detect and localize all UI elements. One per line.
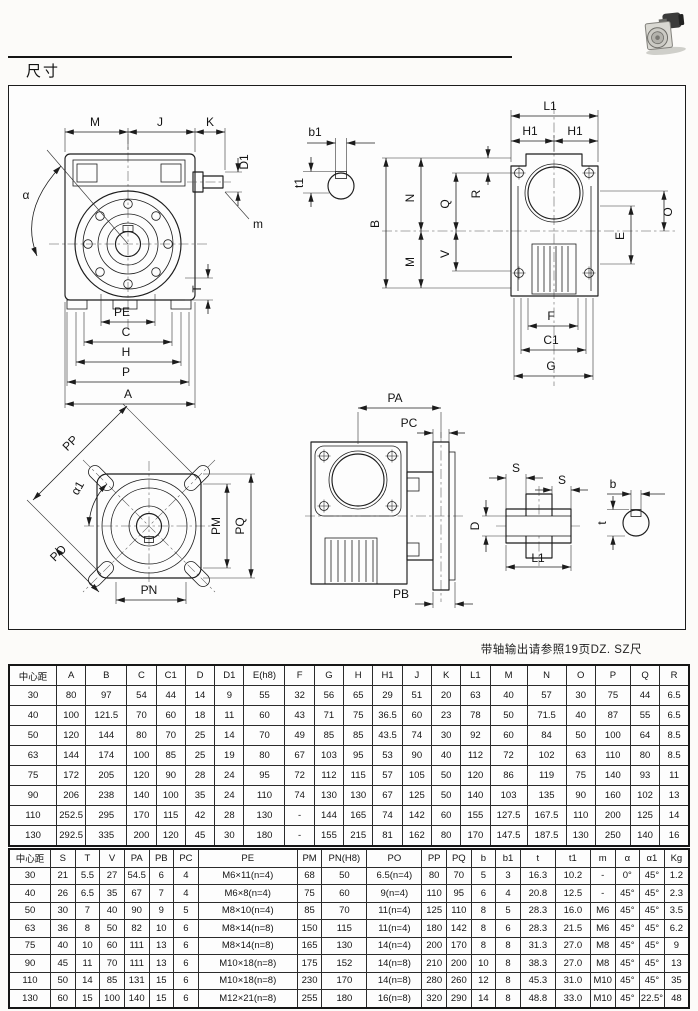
column-header: L1 — [461, 665, 490, 686]
table-cell: 100 — [127, 746, 156, 766]
table-cell: 14 — [471, 990, 496, 1008]
column-header: M — [490, 665, 527, 686]
table-cell: 10.2 — [555, 867, 590, 885]
table-cell: 74 — [373, 806, 402, 826]
table-cell: 13 — [149, 937, 174, 955]
table-cell: 110 — [244, 786, 285, 806]
table-cell: 9 — [664, 937, 689, 955]
table-cell: 200 — [422, 937, 447, 955]
table-cell: 16.0 — [555, 902, 590, 920]
table-cell: 67 — [124, 885, 149, 903]
table-cell: 3 — [496, 867, 521, 885]
table-cell: 30 — [431, 726, 460, 746]
table-cell: 155 — [461, 806, 490, 826]
table-cell: 16(n=8) — [367, 990, 422, 1008]
table-cell: 175 — [297, 955, 322, 973]
table-cell: - — [590, 885, 615, 903]
table-cell: 95 — [447, 885, 472, 903]
table-cell: 90 — [566, 786, 595, 806]
column-header: O — [566, 665, 595, 686]
table-cell: 142 — [402, 806, 431, 826]
table-cell: 8.5 — [660, 726, 689, 746]
table-cell: M10 — [590, 990, 615, 1008]
table-cell: 24 — [215, 766, 244, 786]
column-header: J — [402, 665, 431, 686]
table-cell: 15 — [149, 990, 174, 1008]
table-cell: 86 — [490, 766, 527, 786]
column-header: G — [314, 665, 343, 686]
worm-gearbox-photo — [640, 7, 688, 57]
column-header: F — [285, 665, 314, 686]
table-cell: 55 — [630, 706, 659, 726]
input-key-detail-drawing: b1 t1 — [292, 125, 375, 207]
table-cell: 10 — [471, 955, 496, 973]
table-cell: 63 — [9, 746, 57, 766]
table-row: 130292.53352001204530180-155215811628017… — [9, 826, 689, 847]
table-cell: 30 — [9, 686, 57, 706]
table-cell: 215 — [344, 826, 373, 847]
table-cell: 320 — [422, 990, 447, 1008]
table-cell: 335 — [86, 826, 127, 847]
table-cell: 65 — [344, 686, 373, 706]
column-header: Kg — [664, 849, 689, 867]
shaft-output-note: 带轴输出请参照19页DZ. SZ尺 — [481, 641, 642, 657]
column-header: A — [57, 665, 86, 686]
table-cell: 24 — [215, 786, 244, 806]
column-header: H1 — [373, 665, 402, 686]
table-cell: 45° — [615, 885, 640, 903]
table-cell: 74 — [285, 786, 314, 806]
table-cell: - — [285, 806, 314, 826]
table-cell: 80 — [422, 867, 447, 885]
table-cell: M6 — [590, 902, 615, 920]
table-cell: 29 — [373, 686, 402, 706]
table-row: 633685082106M8×14(n=8)15011511(n=4)18014… — [9, 920, 689, 938]
table-cell: 200 — [447, 955, 472, 973]
dim-label-J: J — [157, 115, 163, 129]
table-cell: 36.5 — [373, 706, 402, 726]
table-cell: 144 — [314, 806, 343, 826]
table-cell: 6.5 — [660, 706, 689, 726]
table-cell: 75 — [344, 706, 373, 726]
table-cell: 28.3 — [520, 920, 555, 938]
table-cell: 87 — [595, 706, 630, 726]
table-cell: 121.5 — [86, 706, 127, 726]
column-header: Q — [630, 665, 659, 686]
table-cell: 50 — [100, 920, 125, 938]
table-cell: 14 — [215, 726, 244, 746]
table-cell: 13 — [664, 955, 689, 973]
table-cell: 45° — [640, 972, 665, 990]
table-cell: 45° — [640, 920, 665, 938]
table-cell: 30 — [51, 902, 76, 920]
header-rule — [8, 56, 512, 58]
table-cell: 36 — [51, 920, 76, 938]
table-cell: 100 — [100, 990, 125, 1008]
table-cell: 5 — [174, 902, 199, 920]
table-cell: 180 — [322, 990, 367, 1008]
table-cell: 130 — [344, 786, 373, 806]
table-row: 9020623814010035241107413013067125501401… — [9, 786, 689, 806]
table-cell: 28.3 — [520, 902, 555, 920]
table-cell: 71 — [314, 706, 343, 726]
dim-label-K: K — [206, 115, 214, 129]
table-cell: 45° — [640, 902, 665, 920]
column-header: PB — [149, 849, 174, 867]
table-cell: 82 — [124, 920, 149, 938]
table-cell: 100 — [595, 726, 630, 746]
dim-label-B: B — [368, 220, 382, 228]
column-header: t — [520, 849, 555, 867]
table-cell: 6 — [174, 920, 199, 938]
dim-label-Q: Q — [438, 199, 452, 208]
table-cell: 50 — [566, 726, 595, 746]
table-cell: 78 — [461, 706, 490, 726]
table-cell: 95 — [344, 746, 373, 766]
dim-label-V: V — [438, 250, 452, 258]
dim-label-PB: PB — [393, 587, 409, 601]
table-cell: 147.5 — [490, 826, 527, 847]
table-cell: 40 — [431, 746, 460, 766]
table-cell: 165 — [344, 806, 373, 826]
table-cell: 43.5 — [373, 726, 402, 746]
table-cell: 97 — [86, 686, 127, 706]
table-cell: 210 — [422, 955, 447, 973]
table-cell: 45° — [640, 955, 665, 973]
table-cell: 8 — [471, 937, 496, 955]
table-cell: 180 — [422, 920, 447, 938]
dim-label-PM: PM — [209, 517, 223, 535]
table-cell: 44 — [156, 686, 185, 706]
table-cell: 155 — [314, 826, 343, 847]
table-cell: 45° — [615, 902, 640, 920]
table-cell: 140 — [124, 990, 149, 1008]
table-cell: 170 — [447, 937, 472, 955]
table-cell: 63 — [566, 746, 595, 766]
table-cell: 50 — [51, 972, 76, 990]
table-cell: 200 — [127, 826, 156, 847]
table-cell: 4 — [496, 885, 521, 903]
table-cell: 6 — [174, 955, 199, 973]
table-cell: 125 — [630, 806, 659, 826]
table-cell: 6 — [174, 990, 199, 1008]
table-cell: M6×8(n=4) — [198, 885, 297, 903]
table-cell: 35 — [664, 972, 689, 990]
table-cell: 100 — [156, 786, 185, 806]
table-cell: 45° — [615, 972, 640, 990]
table-row: 110501485131156M10×18(n=8)23017014(n=8)2… — [9, 972, 689, 990]
dim-label-t: t — [595, 521, 609, 525]
table-cell: 110 — [447, 902, 472, 920]
table-cell: 170 — [461, 826, 490, 847]
table-cell: 75 — [566, 766, 595, 786]
table-cell: 5 — [496, 902, 521, 920]
dimension-drawings: α M J K D1 m — [9, 86, 684, 627]
table-cell: 103 — [314, 746, 343, 766]
table-cell: 55 — [244, 686, 285, 706]
side-view-drawing: L1 H1 H1 B N Q R M — [368, 99, 677, 386]
table-cell: 45 — [51, 955, 76, 973]
output-side-view-drawing: PA PC PB — [305, 391, 473, 608]
table-cell: 57 — [527, 686, 566, 706]
table-cell: 150 — [297, 920, 322, 938]
dim-label-b1: b1 — [308, 125, 322, 139]
table-cell: 6.5 — [660, 686, 689, 706]
table-cell: 140 — [461, 786, 490, 806]
dim-label-S-left: S — [512, 461, 520, 475]
table-cell: 238 — [86, 786, 127, 806]
table-cell: 54 — [127, 686, 156, 706]
table-cell: M10 — [590, 972, 615, 990]
table-cell: 120 — [156, 826, 185, 847]
column-header: H — [344, 665, 373, 686]
table-cell: 75 — [297, 885, 322, 903]
table-cell: 22.5° — [640, 990, 665, 1008]
table-cell: 140 — [630, 826, 659, 847]
table-cell: 75 — [9, 937, 51, 955]
table-cell: 38.3 — [520, 955, 555, 973]
table-cell: 125 — [402, 786, 431, 806]
dim-label-m: m — [253, 217, 263, 231]
table-cell: 56 — [314, 686, 343, 706]
table-cell: 6 — [149, 867, 174, 885]
table-cell: 6.5(n=4) — [367, 867, 422, 885]
table-cell: 64 — [630, 726, 659, 746]
table-cell: 5.5 — [75, 867, 100, 885]
table-cell: 50 — [9, 902, 51, 920]
dimension-table-2: 中心距STVPAPBPCPEPMPN(H8)POPPPQbb1tt1mαα1Kg… — [8, 848, 690, 1009]
table-cell: 31.3 — [520, 937, 555, 955]
table-cell: 5 — [471, 867, 496, 885]
table-cell: 295 — [86, 806, 127, 826]
table-cell: 90 — [402, 746, 431, 766]
table-cell: 15 — [75, 990, 100, 1008]
table-cell: 50 — [431, 766, 460, 786]
table-cell: 4 — [174, 867, 199, 885]
table-cell: 30 — [566, 686, 595, 706]
table-cell: M10×18(n=8) — [198, 955, 297, 973]
table-cell: 152 — [322, 955, 367, 973]
table-cell: 40 — [490, 686, 527, 706]
table-cell: 252.5 — [57, 806, 86, 826]
column-header: D — [185, 665, 214, 686]
table-row: 7517220512090282495721121155710550120861… — [9, 766, 689, 786]
table-cell: 21.5 — [555, 920, 590, 938]
output-flange-view-drawing: PP α1 PO PN PM PQ — [27, 404, 255, 604]
front-view-drawing: α M J K D1 m — [23, 115, 263, 408]
table-cell: M8 — [590, 937, 615, 955]
dim-label-D: D — [468, 521, 482, 530]
table-cell: 162 — [402, 826, 431, 847]
dim-label-S-right: S — [558, 473, 566, 487]
dim-label-L1-shaft: L1 — [531, 551, 545, 565]
table-cell: 115 — [322, 920, 367, 938]
table-cell: 8 — [496, 955, 521, 973]
table-cell: 50 — [9, 726, 57, 746]
table-cell: 111 — [124, 955, 149, 973]
table-cell: 11 — [75, 955, 100, 973]
table-cell: 35 — [100, 885, 125, 903]
table-cell: 125 — [422, 902, 447, 920]
table-cell: 90 — [156, 766, 185, 786]
table-cell: 80 — [57, 686, 86, 706]
table-cell: 23 — [431, 706, 460, 726]
table-cell: 11(n=4) — [367, 902, 422, 920]
table-cell: 54.5 — [124, 867, 149, 885]
table-cell: 14(n=8) — [367, 955, 422, 973]
dim-label-PC: PC — [401, 416, 418, 430]
table-cell: 71.5 — [527, 706, 566, 726]
table-cell: 230 — [297, 972, 322, 990]
column-header: α1 — [640, 849, 665, 867]
table-cell: 119 — [527, 766, 566, 786]
table-cell: 130 — [322, 937, 367, 955]
table-row: 50120144807025147049858543.5743092608450… — [9, 726, 689, 746]
table-cell: 21 — [51, 867, 76, 885]
dimension-table-1: 中心距ABCC1DD1E(h8)FGHH1JKL1MNOPQR308097544… — [8, 664, 690, 847]
table-cell: 250 — [595, 826, 630, 847]
table-cell: 57 — [373, 766, 402, 786]
dim-label-PE: PE — [114, 305, 130, 319]
table-cell: 7 — [149, 885, 174, 903]
dimension-drawings-panel: α M J K D1 m — [8, 85, 686, 630]
dim-label-H1-right: H1 — [567, 124, 583, 138]
table-cell: 80 — [431, 826, 460, 847]
table-cell: 53 — [373, 746, 402, 766]
table-cell: 50 — [431, 786, 460, 806]
table-cell: 160 — [595, 786, 630, 806]
table-cell: 25 — [185, 726, 214, 746]
table-cell: 31.0 — [555, 972, 590, 990]
table-cell: 8 — [471, 902, 496, 920]
column-header: PA — [124, 849, 149, 867]
table-cell: 51 — [402, 686, 431, 706]
table-cell: 20.8 — [520, 885, 555, 903]
table-cell: M8×10(n=4) — [198, 902, 297, 920]
table-cell: 30 — [9, 867, 51, 885]
column-header: PC — [174, 849, 199, 867]
dimension-table-1-wrap: 中心距ABCC1DD1E(h8)FGHH1JKL1MNOPQR308097544… — [8, 664, 690, 847]
table-cell: 111 — [124, 937, 149, 955]
column-header: PE — [198, 849, 297, 867]
table-cell: 72 — [285, 766, 314, 786]
table-row: 50307409095M8×10(n=4)857011(n=4)12511085… — [9, 902, 689, 920]
table-cell: 40 — [9, 706, 57, 726]
table-cell: 75 — [595, 686, 630, 706]
table-cell: 70 — [322, 902, 367, 920]
table-cell: 35 — [185, 786, 214, 806]
column-header: PN(H8) — [322, 849, 367, 867]
table-cell: 20 — [431, 686, 460, 706]
table-cell: 130 — [566, 826, 595, 847]
table-cell: 120 — [461, 766, 490, 786]
table-cell: 44 — [630, 686, 659, 706]
table-cell: 27 — [100, 867, 125, 885]
table-cell: 9(n=4) — [367, 885, 422, 903]
table-cell: 292.5 — [57, 826, 86, 847]
column-header: b — [471, 849, 496, 867]
table-cell: - — [590, 867, 615, 885]
table-cell: 115 — [156, 806, 185, 826]
table-cell: 45° — [640, 937, 665, 955]
page-title: 尺寸 — [26, 60, 60, 81]
dim-label-L1: L1 — [543, 99, 557, 113]
table-cell: 85 — [314, 726, 343, 746]
table-cell: 19 — [215, 746, 244, 766]
table-cell: 48.8 — [520, 990, 555, 1008]
table-cell: 40 — [566, 706, 595, 726]
table-cell: 45.3 — [520, 972, 555, 990]
table-cell: 70 — [156, 726, 185, 746]
table-cell: 60 — [51, 990, 76, 1008]
table-cell: 100 — [57, 706, 86, 726]
dim-label-H1-left: H1 — [522, 124, 538, 138]
table-cell: 6.5 — [75, 885, 100, 903]
table-cell: 50 — [490, 706, 527, 726]
table-cell: 12 — [471, 972, 496, 990]
table-cell: 14 — [660, 806, 689, 826]
table-cell: 60 — [322, 885, 367, 903]
catalog-page: 尺寸 — [0, 0, 698, 1011]
dim-label-M: M — [403, 257, 417, 267]
table-cell: 10 — [149, 920, 174, 938]
table-cell: 60 — [100, 937, 125, 955]
table-cell: 85 — [100, 972, 125, 990]
table-cell: 1.2 — [664, 867, 689, 885]
table-cell: 80 — [630, 746, 659, 766]
table-cell: 13 — [149, 955, 174, 973]
table-cell: 11 — [660, 766, 689, 786]
column-header: N — [527, 665, 566, 686]
table-cell: 9 — [149, 902, 174, 920]
table-cell: 13 — [660, 786, 689, 806]
table-cell: 50 — [322, 867, 367, 885]
table-cell: 103 — [490, 786, 527, 806]
table-cell: 8 — [496, 990, 521, 1008]
dim-label-A: A — [124, 387, 132, 401]
table-cell: 42 — [185, 806, 214, 826]
dim-label-alpha: α — [23, 188, 30, 202]
table-cell: 16 — [660, 826, 689, 847]
table-row: 110252.52951701154228130-144165741426015… — [9, 806, 689, 826]
column-header: α — [615, 849, 640, 867]
dim-label-E: E — [613, 232, 627, 240]
column-header: B — [86, 665, 127, 686]
table-cell: M6×11(n=4) — [198, 867, 297, 885]
table-cell: 75 — [9, 766, 57, 786]
table-cell: 8 — [471, 920, 496, 938]
table-cell: 130 — [244, 806, 285, 826]
table-cell: 14(n=8) — [367, 972, 422, 990]
dim-label-PA: PA — [387, 391, 402, 405]
table-cell: 172 — [57, 766, 86, 786]
column-header: 中心距 — [9, 849, 51, 867]
table-cell: 16.3 — [520, 867, 555, 885]
dim-label-R: R — [469, 189, 483, 198]
table-cell: 45° — [640, 885, 665, 903]
table-cell: 70 — [127, 706, 156, 726]
table-cell: 90 — [9, 955, 51, 973]
table-cell: 67 — [373, 786, 402, 806]
column-header: D1 — [215, 665, 244, 686]
table-cell: 255 — [297, 990, 322, 1008]
table-cell: 120 — [57, 726, 86, 746]
table-cell: 174 — [86, 746, 127, 766]
column-header: PP — [422, 849, 447, 867]
table-cell: 11 — [215, 706, 244, 726]
column-header: P — [595, 665, 630, 686]
table-cell: 67 — [285, 746, 314, 766]
